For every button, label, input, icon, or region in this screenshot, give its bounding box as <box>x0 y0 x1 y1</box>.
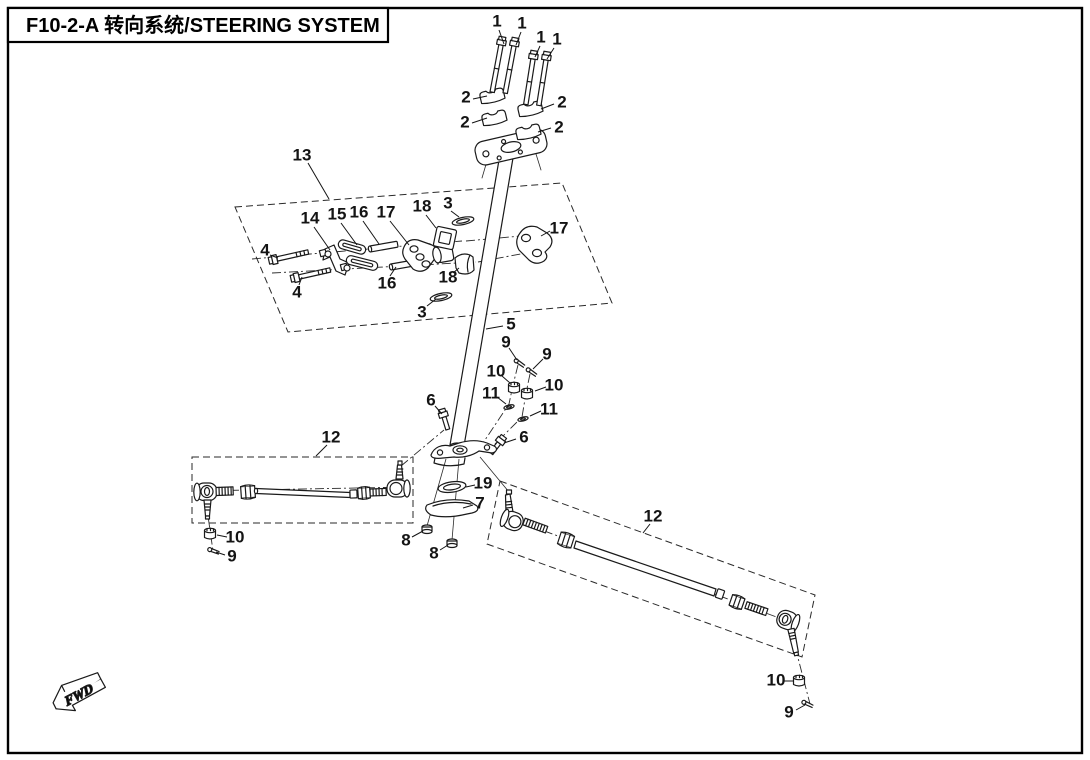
castle-nut <box>794 675 805 686</box>
column-bracket <box>426 500 478 517</box>
callout-layer: 1111222213141516171831744161835991010111… <box>216 12 805 722</box>
callout-label-16: 16 <box>350 203 369 222</box>
flat-washer <box>503 404 514 410</box>
callout-label-4: 4 <box>292 283 302 302</box>
castle-nut <box>205 528 216 539</box>
callout-label-9: 9 <box>542 345 551 364</box>
callout-label-9: 9 <box>501 333 510 352</box>
flat-washer <box>517 416 528 422</box>
callout-label-1: 1 <box>517 14 526 33</box>
steering-arm <box>431 441 496 466</box>
callout-label-6: 6 <box>519 428 528 447</box>
callout-leader-2 <box>541 104 554 109</box>
callout-label-14: 14 <box>301 209 320 228</box>
callout-label-7: 7 <box>475 494 484 513</box>
callout-label-9: 9 <box>784 703 793 722</box>
callout-label-8: 8 <box>401 531 410 550</box>
callout-label-5: 5 <box>506 315 515 334</box>
handlebar-bolt <box>521 50 538 105</box>
column-ring <box>437 480 466 494</box>
bushing-square <box>433 226 457 250</box>
callout-leader-14 <box>314 227 330 250</box>
lock-nut <box>447 539 457 548</box>
callout-label-2: 2 <box>554 118 563 137</box>
callout-label-6: 6 <box>426 391 435 410</box>
callout-leader-8 <box>440 545 448 550</box>
callout-label-10: 10 <box>487 362 506 381</box>
callout-label-8: 8 <box>429 544 438 563</box>
callout-leader-12 <box>316 445 327 456</box>
column-clamp-right <box>517 226 552 263</box>
cotter-pin <box>513 358 525 367</box>
callout-label-3: 3 <box>443 194 452 213</box>
callout-label-1: 1 <box>492 12 501 31</box>
callout-label-1: 1 <box>552 30 561 49</box>
callout-leader-13 <box>308 163 329 199</box>
callout-label-3: 3 <box>417 303 426 322</box>
fwd-arrow: FWD <box>53 673 105 711</box>
callout-label-17: 17 <box>550 219 569 238</box>
callout-label-10: 10 <box>226 528 245 547</box>
callout-label-15: 15 <box>328 205 347 224</box>
callout-label-19: 19 <box>474 474 493 493</box>
callout-label-10: 10 <box>767 671 786 690</box>
callout-label-12: 12 <box>644 507 663 526</box>
castle-nut <box>509 382 520 393</box>
tie-rod-left <box>194 461 410 519</box>
callout-label-2: 2 <box>557 93 566 112</box>
callout-leader-16 <box>363 221 379 244</box>
callout-label-11: 11 <box>482 384 500 403</box>
callout-leader-9 <box>796 705 805 710</box>
lock-nut <box>422 525 432 534</box>
callout-label-2: 2 <box>461 88 470 107</box>
sleeve-pin <box>368 241 398 252</box>
steering-column <box>450 158 513 449</box>
page-title: F10-2-A 转向系统/STEERING SYSTEM <box>26 13 380 37</box>
callout-label-10: 10 <box>545 376 564 395</box>
cotter-pin <box>525 367 537 376</box>
callout-label-4: 4 <box>260 241 270 260</box>
callout-label-17: 17 <box>377 203 396 222</box>
callout-leader-5 <box>486 326 503 329</box>
callout-leader-8 <box>412 531 423 537</box>
callout-label-18: 18 <box>413 197 432 216</box>
mount-bolt <box>290 266 331 284</box>
callout-label-12: 12 <box>322 428 341 447</box>
washer-ring <box>451 215 474 227</box>
callout-label-2: 2 <box>460 113 469 132</box>
callout-label-18: 18 <box>439 268 458 287</box>
castle-nut <box>522 388 533 399</box>
callout-label-16: 16 <box>378 274 397 293</box>
axis-lines <box>196 236 810 704</box>
bushing-curved <box>455 254 474 274</box>
steering-system-diagram: FWD 111122221314151617183174416183599101… <box>0 0 1090 760</box>
assembly-boxes <box>192 183 815 657</box>
callout-label-13: 13 <box>293 146 312 165</box>
callout-label-11: 11 <box>540 400 558 419</box>
callout-label-1: 1 <box>536 28 545 47</box>
callout-label-9: 9 <box>227 547 236 566</box>
callout-leader-18 <box>426 215 436 228</box>
